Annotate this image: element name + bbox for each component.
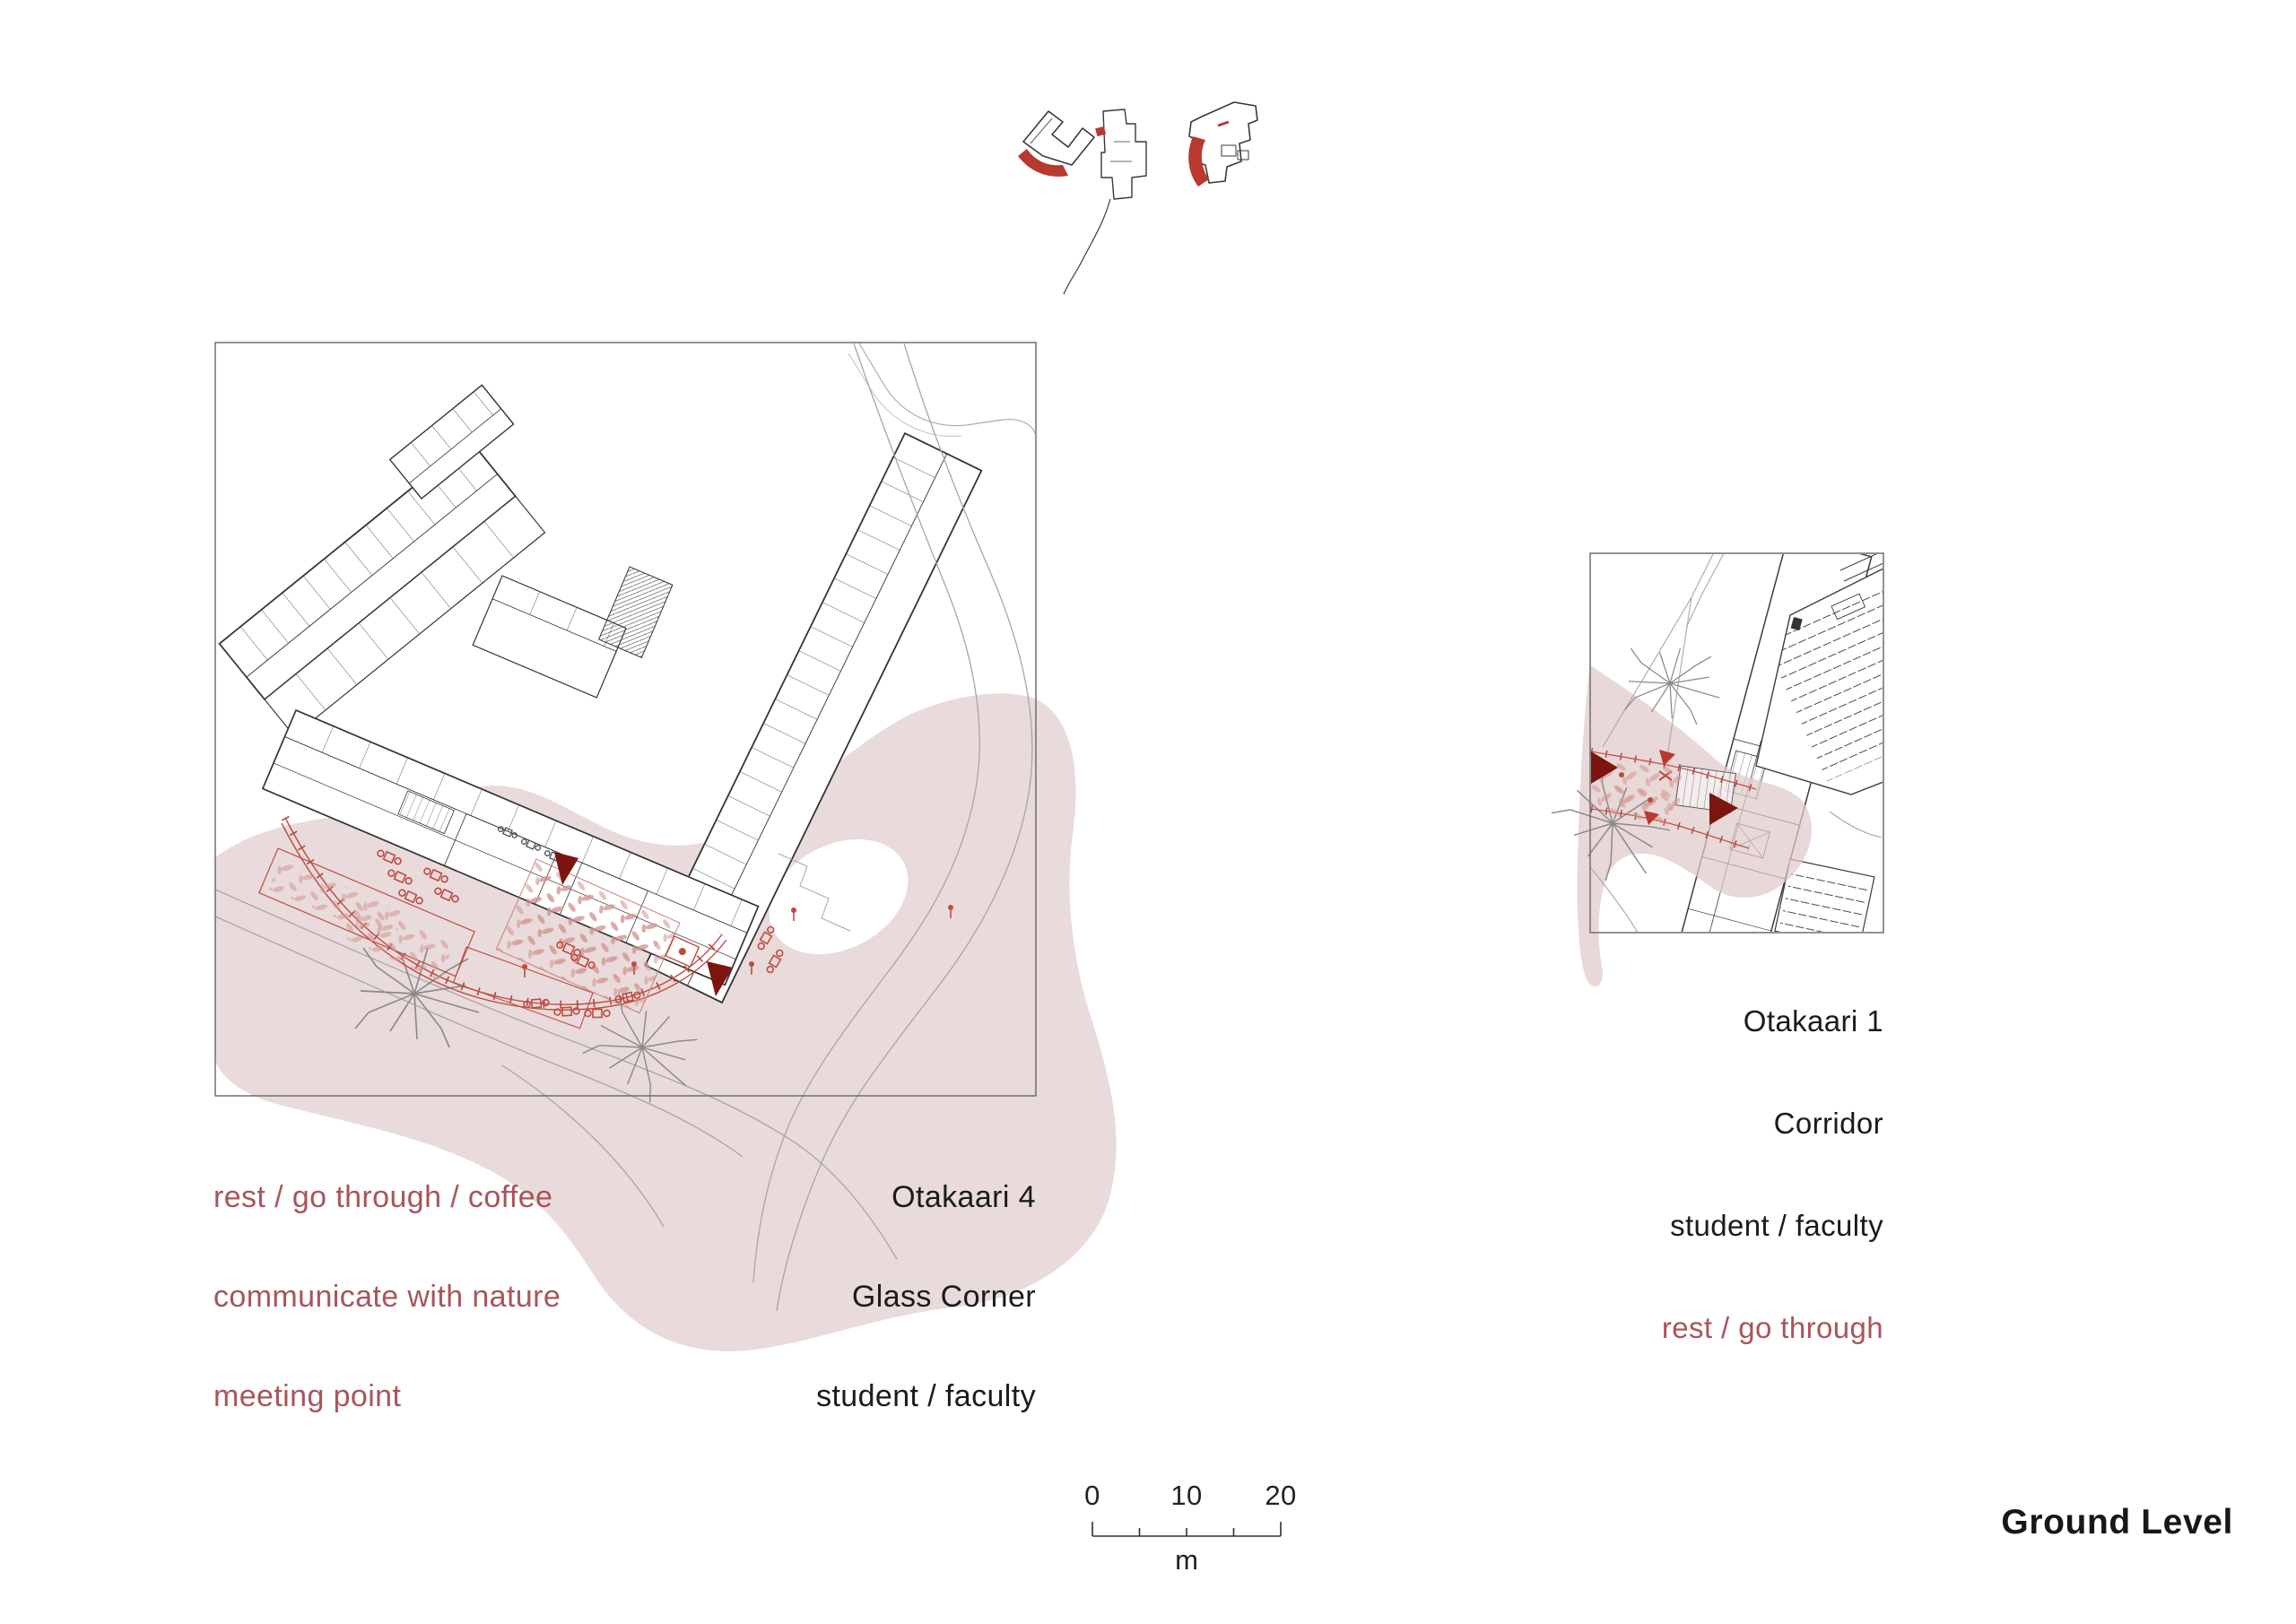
scale-tick-label-10: 10 [1170, 1480, 1202, 1512]
presentation-sheet: rest / go through / coffee communicate w… [0, 0, 2296, 1624]
plan-title: Otakaari 1 [1525, 1004, 1883, 1038]
plan-space: Corridor [1525, 1107, 1883, 1141]
plan-title: Otakaari 4 [659, 1181, 1036, 1214]
otakaari1-plan [1541, 534, 1975, 986]
scale-tick-label-20: 20 [1265, 1480, 1296, 1512]
otakaari4-activity-notes: rest / go through / coffee communicate w… [213, 1115, 561, 1446]
site-key-otakaari1-icon [1188, 102, 1257, 187]
activity-line: communicate with nature [213, 1281, 561, 1314]
activity-line: meeting point [213, 1380, 561, 1413]
plan-users: student / faculty [659, 1380, 1036, 1413]
activity-line: rest / go through / coffee [213, 1181, 561, 1214]
plan-users: student / faculty [1525, 1209, 1883, 1243]
otakaari1-label: Otakaari 1 Corridor student / faculty re… [1525, 936, 1883, 1379]
site-key-otakaari4-icon [1018, 111, 1094, 177]
plan-space: Glass Corner [659, 1281, 1036, 1314]
activity-line: rest / go through [1525, 1311, 1883, 1345]
site-key-maps [1018, 102, 1257, 294]
scale-tick-label-0: 0 [1084, 1480, 1100, 1512]
otakaari4-label: Otakaari 4 Glass Corner student / facult… [659, 1115, 1036, 1446]
scale-bar [1092, 1522, 1281, 1536]
scale-unit-label: m [1175, 1544, 1198, 1576]
otakaari1-building [1679, 534, 1974, 964]
sheet-level-title: Ground Level [1946, 1503, 2233, 1542]
